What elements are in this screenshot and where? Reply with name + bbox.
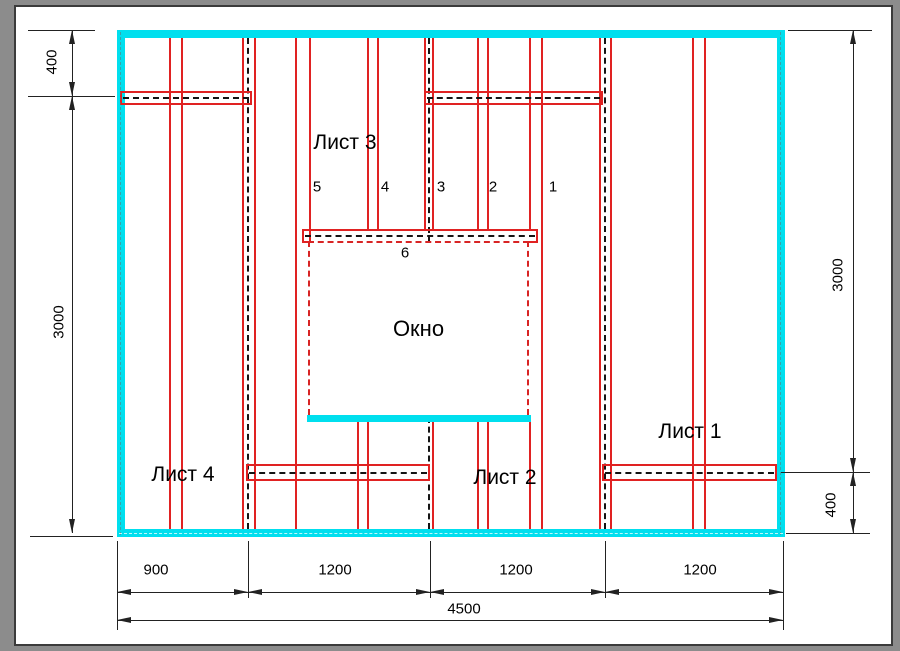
extension-line (783, 541, 784, 630)
window-sill (307, 415, 531, 422)
extension-line (781, 472, 870, 473)
arrow-up-icon (69, 30, 75, 44)
strip-centerline (123, 97, 249, 99)
arrow-up-icon (69, 96, 75, 110)
stud-line (477, 38, 479, 229)
arrow-up-icon (850, 30, 856, 44)
stud-line (529, 38, 531, 229)
strip-centerline (605, 472, 774, 474)
stud-line (254, 38, 256, 529)
arrow-left-icon (605, 589, 619, 595)
dim-label-right-3000: 3000 (830, 258, 847, 291)
stud-line (610, 38, 612, 529)
dim-label-right-400: 400 (823, 492, 840, 517)
stud-line (692, 38, 694, 529)
strip-centerline (427, 97, 600, 99)
stud-number-1: 1 (549, 179, 557, 196)
stud-line (181, 38, 183, 529)
arrow-down-icon (69, 82, 75, 96)
stud-line (242, 38, 244, 529)
extension-line (786, 533, 870, 534)
stud-line (169, 38, 171, 529)
stud-line (432, 38, 434, 229)
dim-label-1200-a: 1200 (318, 562, 351, 579)
drawing-stage: Окно Лист 1 Лист 2 Лист 3 Лист 4 1 2 3 4… (0, 0, 900, 651)
arrow-down-icon (850, 458, 856, 472)
arrow-right-icon (416, 589, 430, 595)
dimension-line (117, 592, 783, 593)
wall-edge-dash (780, 32, 781, 535)
arrow-left-icon (430, 589, 444, 595)
horizontal-profile-strip (246, 464, 430, 481)
dim-label-4500: 4500 (447, 601, 480, 618)
stud-line (599, 38, 601, 529)
stud-number-2: 2 (489, 179, 497, 196)
horizontal-profile-strip (424, 91, 603, 105)
horizontal-profile-strip (120, 91, 252, 105)
dim-label-900: 900 (143, 562, 168, 579)
window-opening: Окно (308, 241, 529, 415)
dim-label-1200-b: 1200 (499, 562, 532, 579)
stud-line (487, 38, 489, 229)
dim-label-left-3000: 3000 (51, 305, 68, 338)
wall-edge-dash (120, 32, 121, 535)
horizontal-profile-strip (602, 464, 777, 481)
sheet-label-1: Лист 1 (658, 420, 721, 444)
wall-edge-dash (119, 533, 783, 534)
strip-centerline (249, 472, 427, 474)
arrow-left-icon (248, 589, 262, 595)
sheet-boundary-dashed-line (247, 38, 249, 529)
sheet-boundary-dashed-line (428, 38, 430, 243)
arrow-up-icon (850, 472, 856, 486)
stud-number-3: 3 (437, 179, 445, 196)
strip-centerline (305, 235, 535, 237)
arrow-right-icon (591, 589, 605, 595)
window-label: Окно (393, 316, 444, 342)
stud-line (432, 417, 434, 529)
stud-number-5: 5 (313, 179, 321, 196)
stud-line (377, 38, 379, 229)
sheet-boundary-dashed-line (604, 38, 606, 529)
arrow-left-icon (117, 589, 131, 595)
arrow-right-icon (234, 589, 248, 595)
stud-line (295, 38, 297, 529)
arrow-down-icon (850, 519, 856, 533)
extension-line (788, 30, 872, 31)
stud-line (704, 38, 706, 529)
sheet-label-4: Лист 4 (151, 463, 214, 487)
arrow-left-icon (117, 617, 131, 623)
stud-line (424, 38, 426, 229)
stud-line (309, 38, 311, 241)
dim-label-left-400: 400 (44, 49, 61, 74)
sheet-label-2: Лист 2 (473, 466, 536, 490)
stud-number-6: 6 (401, 245, 409, 262)
extension-line (30, 536, 113, 537)
arrow-down-icon (69, 519, 75, 533)
arrow-right-icon (769, 617, 783, 623)
sheet-label-3: Лист 3 (313, 131, 376, 155)
arrow-right-icon (769, 589, 783, 595)
dim-label-1200-c: 1200 (683, 562, 716, 579)
stud-number-4: 4 (381, 179, 389, 196)
stud-line (541, 38, 543, 529)
extension-line (28, 30, 95, 31)
dimension-line (117, 620, 783, 621)
